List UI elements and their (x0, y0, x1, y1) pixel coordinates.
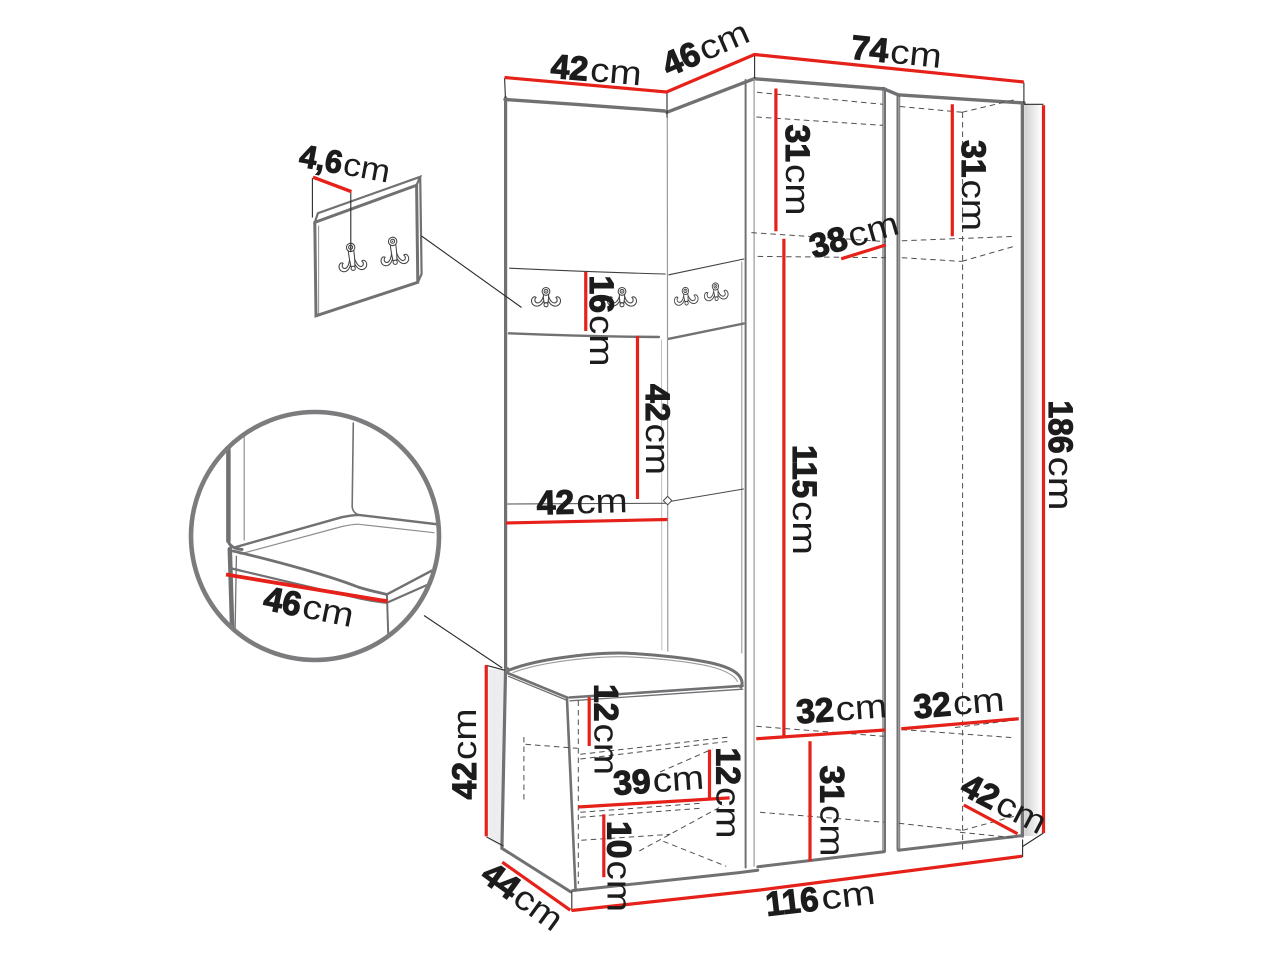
svg-text:12: 12 (709, 748, 747, 786)
svg-text:16: 16 (582, 276, 620, 314)
svg-text:cm: cm (813, 805, 851, 857)
svg-text:42: 42 (446, 762, 484, 800)
svg-text:cm: cm (651, 759, 705, 800)
svg-text:cm: cm (951, 681, 1006, 723)
svg-text:cm: cm (576, 482, 628, 521)
svg-text:32: 32 (795, 691, 835, 732)
svg-text:cm: cm (843, 205, 903, 256)
svg-text:42: 42 (549, 48, 590, 89)
svg-text:cm: cm (638, 424, 676, 476)
svg-text:cm: cm (600, 861, 638, 913)
svg-text:31: 31 (813, 766, 851, 804)
svg-text:4,6: 4,6 (297, 137, 346, 180)
svg-text:cm: cm (819, 874, 877, 918)
svg-text:12: 12 (587, 684, 625, 722)
svg-text:31: 31 (778, 125, 816, 163)
svg-text:cm: cm (340, 146, 393, 190)
svg-text:42: 42 (638, 384, 676, 422)
svg-text:cm: cm (709, 787, 747, 839)
svg-text:cm: cm (446, 709, 484, 761)
svg-text:32: 32 (912, 685, 953, 726)
svg-text:cm: cm (785, 501, 823, 555)
svg-text:cm: cm (954, 180, 992, 232)
svg-text:186: 186 (1041, 401, 1079, 454)
svg-text:115: 115 (785, 445, 823, 498)
svg-text:116: 116 (764, 880, 821, 924)
svg-text:cm: cm (589, 51, 644, 93)
svg-text:39: 39 (612, 762, 652, 803)
svg-text:42: 42 (536, 484, 574, 523)
svg-text:46: 46 (260, 580, 304, 625)
svg-text:31: 31 (954, 140, 992, 178)
svg-text:cm: cm (1041, 457, 1079, 511)
svg-text:10: 10 (600, 821, 638, 859)
svg-text:cm: cm (778, 164, 816, 216)
svg-text:cm: cm (582, 315, 620, 367)
svg-text:74: 74 (849, 29, 890, 71)
svg-text:cm: cm (834, 687, 888, 728)
svg-text:cm: cm (888, 33, 943, 76)
